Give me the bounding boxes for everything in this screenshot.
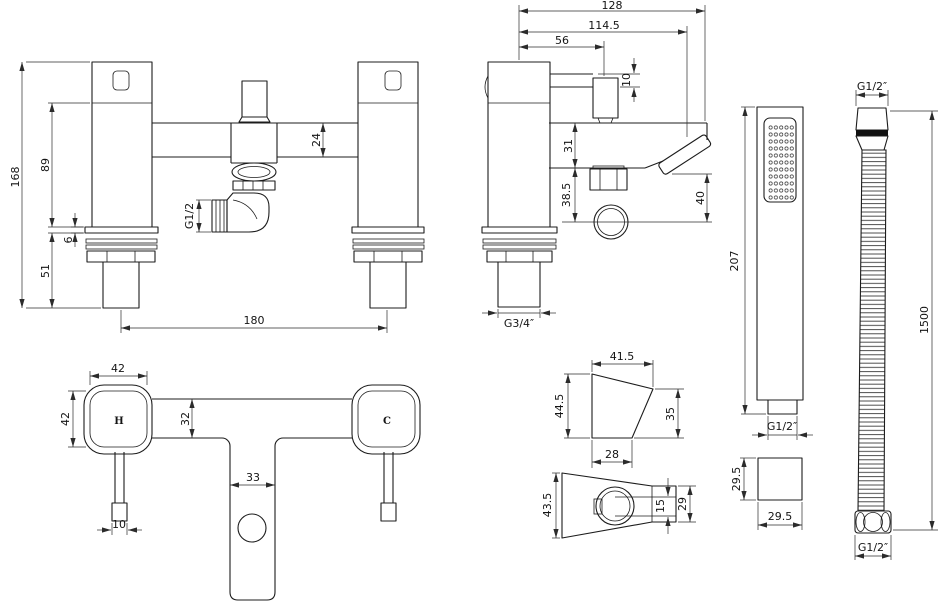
dim-handset-length: 207 — [728, 251, 741, 272]
dim-bracket-top-width: 41.5 — [610, 350, 635, 363]
dim-plan-body-width: 32 — [179, 412, 192, 426]
dim-side-valve-height: 40 — [694, 191, 707, 205]
hose-bottom-nut — [855, 511, 891, 533]
side-view — [482, 62, 712, 307]
bracket-side-body — [592, 374, 653, 438]
side-outlet-nut — [590, 169, 627, 190]
dim-side-depth-overall: 128 — [602, 0, 623, 12]
dim-front-body-height: 89 — [39, 158, 52, 172]
front-elbow-thread — [212, 200, 227, 232]
hose-flexible-tube — [858, 150, 886, 511]
dim-side-spout-drop: 31 — [562, 139, 575, 153]
plan-hot-label: H — [114, 416, 123, 427]
plan-cold-label: C — [383, 416, 391, 427]
dim-front-outlet-thread: G1/2 — [183, 203, 196, 229]
front-diverter-knob — [242, 81, 267, 117]
front-right-shank — [370, 262, 406, 308]
dim-handset-section-height: 29.5 — [730, 467, 743, 492]
side-diverter-handle — [658, 134, 712, 175]
dim-front-shank-length: 51 — [39, 264, 52, 278]
dim-bracket-length: 43.5 — [541, 493, 554, 518]
side-shank — [498, 262, 540, 307]
front-right-column — [358, 62, 418, 227]
drawing-svg: 168 89 6 51 24 G1/2 180 128 114.5 56 10 … — [0, 0, 950, 610]
dim-plan-handle-width: 42 — [111, 362, 125, 375]
dim-plan-lever-width: 10 — [112, 518, 126, 531]
dim-bracket-front-height: 44.5 — [553, 394, 566, 419]
handset-outlet-stub — [768, 400, 797, 414]
dim-bracket-base-width: 28 — [605, 448, 619, 461]
plan-cold-lever-tip — [381, 503, 396, 521]
front-left-button — [113, 71, 129, 90]
side-column — [488, 62, 550, 227]
front-outlet-nut — [233, 181, 275, 190]
dim-side-outlet-drop: 38.5 — [560, 183, 573, 208]
dim-plan-handle-depth: 42 — [59, 412, 72, 426]
handset-cross-section — [758, 458, 802, 500]
hose-view — [855, 108, 891, 533]
dim-handset-section-width: 29.5 — [768, 510, 793, 523]
plan-diverter-hole — [238, 514, 266, 542]
handset-spray-nozzles — [768, 124, 794, 201]
bracket-side-view — [592, 374, 653, 438]
front-left-column — [92, 62, 152, 227]
technical-drawing-sheet: 168 89 6 51 24 G1/2 180 128 114.5 56 10 … — [0, 0, 950, 610]
dim-front-hole-centres: 180 — [244, 314, 265, 327]
dim-side-inlet-thread: G3/4″ — [504, 317, 534, 330]
dim-plan-spout-width: 33 — [246, 471, 260, 484]
dim-hose-length: 1500 — [918, 306, 931, 334]
side-view-dimensions — [482, 5, 712, 318]
hose-connector-band — [856, 130, 888, 136]
bracket-bottom-dimensions — [552, 473, 696, 538]
dim-bracket-slot-width: 15 — [654, 499, 667, 513]
dim-front-overall-height: 168 — [9, 167, 22, 188]
dim-hose-top-thread: G1/2″ — [857, 80, 887, 93]
dim-front-spout-height: 24 — [310, 133, 323, 147]
front-right-button — [385, 71, 401, 90]
dim-bracket-clip-width: 29 — [676, 497, 689, 511]
plan-view — [84, 385, 420, 600]
dim-side-lever-thickness: 10 — [620, 73, 633, 87]
dim-hose-bottom-thread: G1/2″ — [858, 541, 888, 554]
hose-top-connector — [856, 108, 888, 130]
handset-view — [757, 107, 803, 500]
dim-side-depth-to-handle: 114.5 — [588, 19, 620, 32]
front-elbow-outlet — [227, 193, 269, 232]
side-lever-grip — [593, 78, 618, 118]
dim-side-depth-to-lever: 56 — [555, 34, 569, 47]
front-view-dimensions — [22, 62, 387, 333]
dim-front-deck-plate: 6 — [62, 237, 75, 244]
dim-bracket-back-height: 35 — [664, 407, 677, 421]
dim-handset-outlet-thread: G1/2″ — [767, 420, 797, 433]
dimension-labels: 168 89 6 51 24 G1/2 180 128 114.5 56 10 … — [9, 0, 931, 554]
front-view — [85, 62, 424, 308]
front-left-shank — [103, 262, 139, 308]
